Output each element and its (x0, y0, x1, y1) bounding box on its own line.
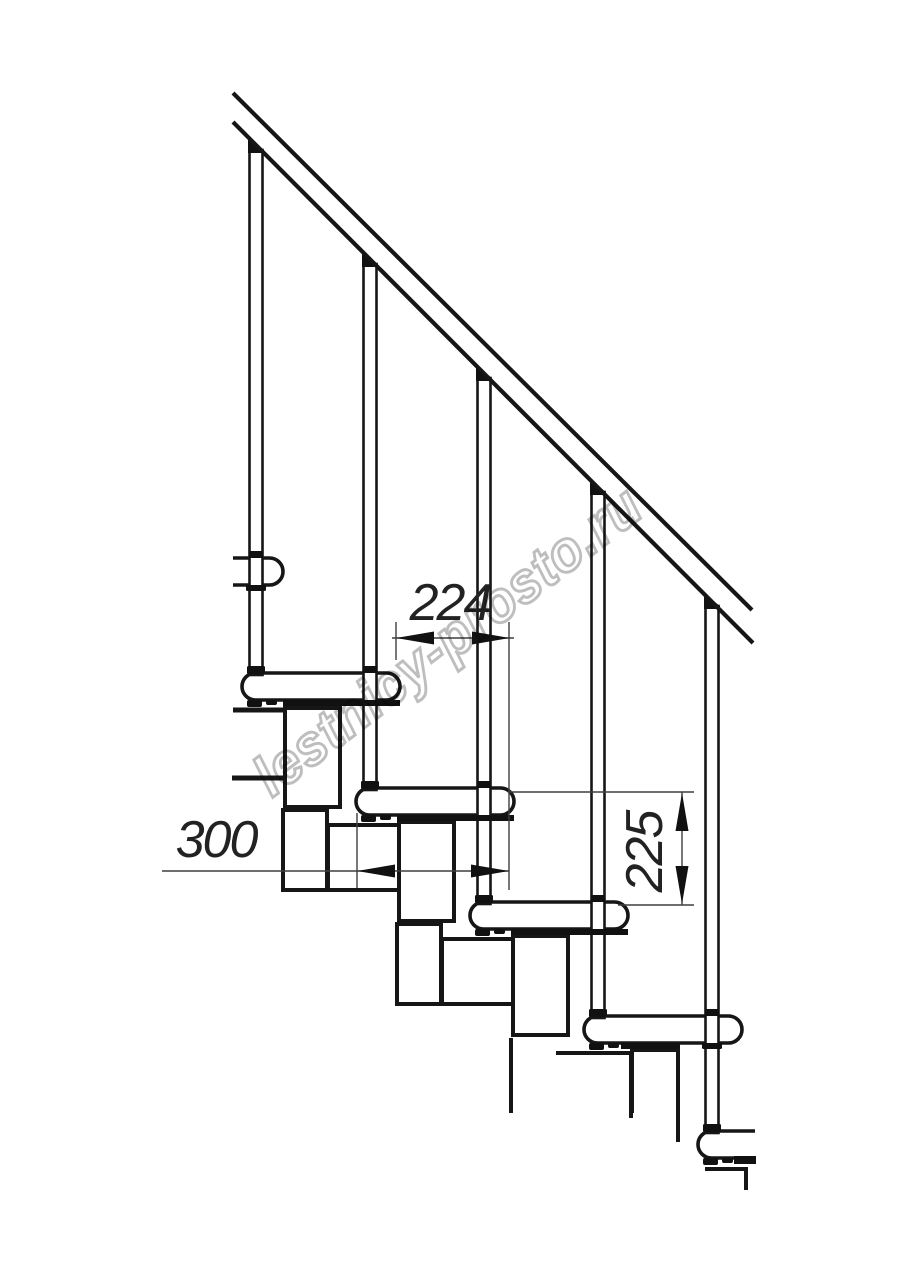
arrow-up-icon (676, 793, 689, 831)
tread-partial-bottom (698, 1131, 755, 1158)
module-box-cut (630, 1050, 680, 1142)
module-box (283, 810, 327, 890)
staircase-drawing: 224 300 225 lestnicy-prosto.ru (0, 0, 914, 1280)
module-box (397, 924, 441, 1004)
base-step-line (705, 1169, 746, 1190)
module-box (328, 825, 403, 890)
handrail-top-edge (233, 93, 752, 610)
handrail-bottom-edge (233, 122, 753, 643)
dimension-label-300: 300 (176, 811, 259, 869)
baluster (250, 150, 263, 675)
handrail (233, 93, 753, 643)
staircase-drawing-page: 224 300 225 lestnicy-prosto.ru (0, 0, 914, 1280)
dimension-label-225: 225 (616, 809, 674, 894)
module-box-cut (556, 1053, 631, 1118)
module-box (513, 936, 568, 1035)
arrow-down-icon (676, 866, 689, 904)
baluster (592, 492, 605, 1018)
baluster (706, 606, 719, 1133)
module-box (442, 939, 517, 1004)
